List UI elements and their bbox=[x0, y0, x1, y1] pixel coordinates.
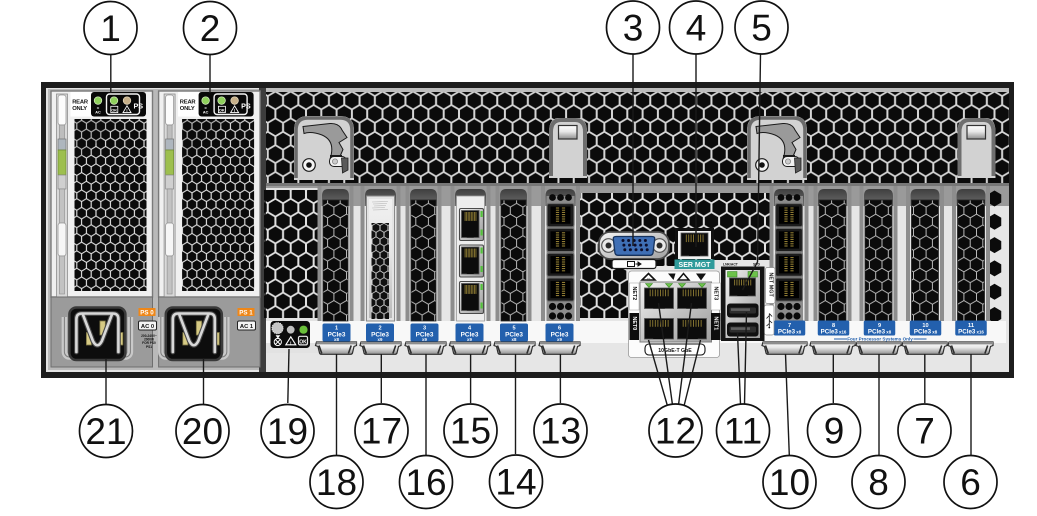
svg-text:AC: AC bbox=[203, 110, 209, 114]
svg-text:REAR: REAR bbox=[72, 99, 89, 105]
svg-text:14: 14 bbox=[495, 462, 536, 503]
svg-text:↔: ↔ bbox=[646, 275, 650, 280]
svg-text:15: 15 bbox=[450, 411, 491, 452]
svg-text:9: 9 bbox=[824, 411, 845, 452]
svg-text:16: 16 bbox=[405, 462, 446, 503]
svg-text:AC 1: AC 1 bbox=[240, 324, 254, 330]
svg-text:x9: x9 bbox=[422, 337, 427, 342]
svg-text:8: 8 bbox=[868, 462, 889, 503]
svg-text:x9: x9 bbox=[467, 337, 472, 342]
svg-text:PS: PS bbox=[241, 102, 251, 111]
svg-text:OK: OK bbox=[111, 107, 117, 112]
svg-text:AC 0: AC 0 bbox=[141, 324, 154, 330]
svg-text:7: 7 bbox=[914, 411, 935, 452]
svg-text:PCIe3 x8: PCIe3 x8 bbox=[778, 329, 802, 336]
svg-text:x9: x9 bbox=[378, 337, 383, 342]
svg-text:20: 20 bbox=[182, 411, 223, 452]
svg-text:LNK/ACT: LNK/ACT bbox=[723, 263, 739, 267]
svg-text:PS: PS bbox=[134, 102, 144, 111]
svg-text:AC: AC bbox=[95, 110, 101, 114]
svg-text:REAR: REAR bbox=[180, 99, 197, 105]
svg-text:x8: x8 bbox=[512, 337, 517, 342]
svg-text:10GbE-T GbE: 10GbE-T GbE bbox=[658, 348, 692, 354]
svg-text:5: 5 bbox=[751, 8, 772, 49]
svg-text:PCIe3 x16: PCIe3 x16 bbox=[821, 329, 847, 336]
svg-text:NET2: NET2 bbox=[631, 287, 637, 301]
svg-text:!: ! bbox=[234, 108, 235, 113]
svg-text:Four Processor Systems Only: Four Processor Systems Only bbox=[847, 337, 913, 342]
svg-text:11: 11 bbox=[724, 411, 762, 452]
svg-text:10: 10 bbox=[769, 462, 810, 503]
svg-text:OK: OK bbox=[299, 340, 307, 346]
svg-text:PCIe3 x16: PCIe3 x16 bbox=[958, 329, 984, 336]
svg-text:PCIe3 x8: PCIe3 x8 bbox=[914, 329, 938, 336]
svg-text:17: 17 bbox=[361, 411, 402, 452]
svg-text:6: 6 bbox=[960, 462, 981, 503]
svg-text:!: ! bbox=[126, 108, 127, 113]
svg-text:19: 19 bbox=[267, 411, 308, 452]
svg-text:21: 21 bbox=[85, 411, 126, 452]
svg-text:3: 3 bbox=[623, 8, 644, 49]
svg-text:NET0: NET0 bbox=[631, 317, 637, 331]
svg-text:18: 18 bbox=[316, 462, 357, 503]
svg-text:PS 1: PS 1 bbox=[239, 310, 253, 317]
svg-text:2: 2 bbox=[200, 8, 221, 49]
svg-text:PS1: PS1 bbox=[146, 345, 152, 349]
svg-text:PS 0: PS 0 bbox=[140, 310, 154, 317]
svg-text:x9: x9 bbox=[557, 337, 562, 342]
svg-text:ONLY: ONLY bbox=[180, 106, 195, 112]
svg-text:1: 1 bbox=[100, 8, 121, 49]
svg-text:12: 12 bbox=[655, 411, 696, 452]
svg-text:x8: x8 bbox=[334, 337, 339, 342]
svg-text:ONLY: ONLY bbox=[72, 106, 87, 112]
svg-text:OK: OK bbox=[219, 107, 225, 112]
svg-text:NET3: NET3 bbox=[713, 287, 719, 301]
svg-text:NET MGT: NET MGT bbox=[767, 273, 773, 298]
svg-text:NET1: NET1 bbox=[713, 317, 719, 331]
svg-text:13: 13 bbox=[540, 411, 581, 452]
svg-text:4: 4 bbox=[686, 8, 707, 49]
svg-text:PCIe3 x8: PCIe3 x8 bbox=[868, 329, 892, 336]
svg-text:SER MGT: SER MGT bbox=[679, 262, 712, 269]
